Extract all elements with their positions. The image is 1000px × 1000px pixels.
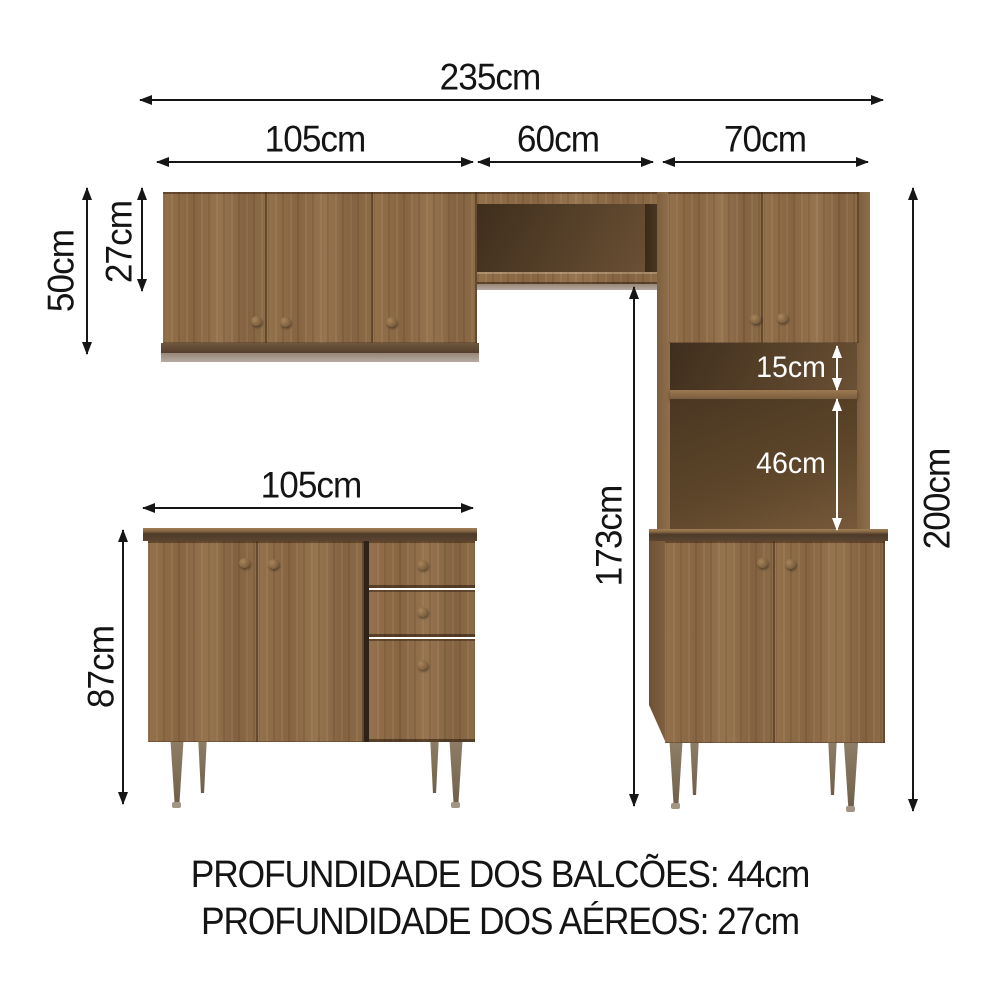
door-knob	[280, 317, 291, 327]
open-niche-top-band	[477, 192, 658, 204]
tall-unit-leg-front-left	[666, 743, 686, 805]
tall-unit-leg-rear-left	[688, 743, 701, 795]
upper-left-cabinet-bottom-board	[161, 343, 479, 353]
door-knob	[757, 558, 768, 568]
tall-unit-base-door-2	[775, 541, 885, 743]
open-niche-interior	[477, 204, 645, 272]
base-cabinet-door-2	[258, 541, 364, 742]
base-cabinet-drawer-3	[369, 639, 475, 742]
door-knob	[785, 559, 796, 569]
dim-label-shelf-top-gap: 15cm	[756, 353, 826, 383]
door-knob	[251, 316, 262, 326]
dim-label-balcao-height: 87cm	[83, 626, 120, 708]
tall-unit-shelf-divider	[670, 390, 857, 399]
door-knob	[239, 558, 250, 568]
tall-unit-upper-door-1	[668, 192, 763, 343]
dim-arrow-total-width	[140, 99, 883, 101]
door-knob	[777, 313, 788, 323]
base-cabinet-leg-rear-left	[196, 742, 209, 793]
dim-label-shelf-bottom-gap: 46cm	[756, 449, 826, 479]
tall-unit-base-top-board	[649, 529, 888, 541]
furniture-dimension-diagram: 235cm 105cm 60cm 70cm 105cm 50cm 27cm 87…	[0, 0, 1000, 1000]
upper-left-cabinet-underside-shadow	[161, 353, 479, 362]
dim-arrow-aereo-height	[86, 188, 88, 354]
dim-arrow-shelf-bottom-gap	[836, 399, 838, 530]
dim-label-balcao-width: 105cm	[261, 467, 362, 504]
base-cabinet-door-1	[148, 541, 258, 742]
base-cabinet-top-board	[143, 528, 477, 541]
drawer-knob	[417, 660, 428, 670]
drawer-knob	[417, 560, 428, 570]
footer-depth-aereos: PROFUNDIDADE DOS AÉREOS: 27cm	[35, 903, 965, 941]
dim-label-total-width: 235cm	[440, 59, 541, 96]
leg-foot	[671, 803, 680, 809]
dim-arrow-total-height	[912, 188, 914, 811]
tall-unit-leg-rear-right	[826, 743, 839, 795]
tall-unit-leg-front-right	[840, 743, 862, 808]
open-niche-underside-shadow	[477, 284, 658, 290]
tall-unit-shelf-wall-left	[657, 343, 670, 533]
dim-label-aereo-right: 70cm	[724, 121, 806, 158]
leg-foot	[451, 802, 460, 808]
dim-arrow-aereo-right	[663, 161, 868, 163]
dim-label-aereo-height: 50cm	[43, 230, 80, 312]
door-knob	[386, 317, 397, 327]
leg-foot	[846, 806, 855, 812]
dim-arrow-aereo-left	[157, 161, 473, 163]
dim-arrow-aereo-center	[478, 161, 653, 163]
dim-arrow-clearance-height	[633, 287, 635, 806]
footer-depth-balcoes: PROFUNDIDADE DOS BALCÕES: 44cm	[35, 856, 965, 894]
base-cabinet-leg-rear-right	[428, 742, 441, 793]
dim-arrow-niche-height	[141, 188, 143, 291]
open-niche-bottom-board	[477, 272, 658, 284]
dim-label-clearance-height: 173cm	[591, 486, 628, 587]
door-knob	[268, 559, 279, 569]
tall-unit-base-door-1	[665, 541, 775, 743]
base-cabinet-leg-front-left	[167, 742, 187, 804]
tall-unit-base-side-left	[649, 541, 665, 741]
tall-unit-upper-side-left	[657, 192, 668, 343]
dim-arrow-balcao-height	[122, 530, 124, 804]
dim-label-total-height: 200cm	[919, 449, 956, 550]
door-knob	[750, 314, 761, 324]
drawer-knob	[417, 607, 428, 617]
tall-unit-shelf-wall-right	[857, 343, 870, 533]
tall-unit-upper-side-right	[859, 192, 870, 343]
dim-arrow-shelf-top-gap	[836, 346, 838, 390]
dim-label-aereo-left: 105cm	[265, 121, 366, 158]
base-cabinet-leg-front-right	[446, 742, 466, 804]
dim-label-niche-height: 27cm	[101, 201, 138, 283]
leg-foot	[172, 802, 181, 808]
dim-arrow-balcao-width	[143, 507, 473, 509]
dim-label-aereo-center: 60cm	[517, 121, 599, 158]
